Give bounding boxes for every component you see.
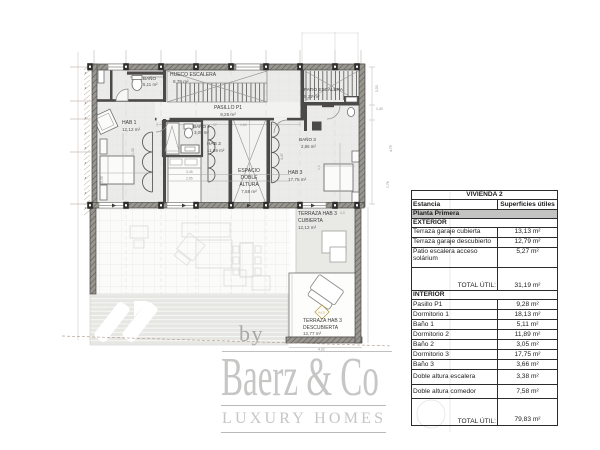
- svg-text:12,77 m²: 12,77 m²: [303, 331, 322, 336]
- svg-text:3,45: 3,45: [186, 170, 193, 174]
- svg-text:12,12 m²: 12,12 m²: [298, 225, 317, 230]
- svg-text:PATIO ESCALERA: PATIO ESCALERA: [304, 87, 344, 92]
- svg-text:8,79 m²: 8,79 m²: [173, 79, 189, 84]
- svg-text:5,27 m²: 5,27 m²: [304, 94, 320, 99]
- svg-text:2,95: 2,95: [186, 177, 193, 181]
- svg-text:17: 17: [213, 123, 217, 127]
- svg-text:ALTURA: ALTURA: [239, 182, 259, 188]
- svg-text:2,53: 2,53: [375, 85, 379, 92]
- svg-text:TERRAZA HAB 3: TERRAZA HAB 3: [298, 211, 337, 217]
- svg-text:DOBLE: DOBLE: [241, 175, 259, 181]
- svg-text:5,11 m²: 5,11 m²: [143, 82, 158, 87]
- svg-text:1,38: 1,38: [131, 148, 135, 155]
- svg-text:7,58 m²: 7,58 m²: [241, 189, 257, 194]
- svg-text:5,39: 5,39: [100, 176, 104, 183]
- svg-text:1,0: 1,0: [317, 165, 321, 170]
- svg-text:%1,5: %1,5: [318, 311, 325, 315]
- svg-text:3,05 m²: 3,05 m²: [194, 130, 209, 135]
- svg-text:2,86 m²: 2,86 m²: [301, 144, 316, 149]
- svg-text:9,28 m²: 9,28 m²: [220, 112, 236, 117]
- svg-text:1,64: 1,64: [240, 123, 247, 127]
- svg-text:0,76: 0,76: [386, 181, 390, 188]
- svg-text:BAÑO: BAÑO: [143, 75, 156, 81]
- svg-text:1,40: 1,40: [376, 107, 383, 111]
- svg-text:BAÑO 3: BAÑO 3: [299, 136, 316, 142]
- svg-text:CUBIERTA: CUBIERTA: [298, 218, 323, 224]
- svg-text:TERRAZA HAB 3: TERRAZA HAB 3: [303, 318, 342, 324]
- svg-text:HUECO ESCALERA: HUECO ESCALERA: [170, 72, 217, 78]
- svg-text:HAB 1: HAB 1: [122, 120, 137, 126]
- svg-text:PASILLO P1: PASILLO P1: [214, 105, 242, 111]
- svg-text:4,0: 4,0: [340, 211, 345, 215]
- svg-text:11,89 m²: 11,89 m²: [207, 148, 225, 153]
- svg-text:17,75 m²: 17,75 m²: [288, 177, 307, 182]
- svg-text:4,75: 4,75: [389, 145, 393, 152]
- svg-text:4,47: 4,47: [280, 153, 284, 160]
- svg-text:ESPACIO: ESPACIO: [238, 168, 260, 174]
- svg-text:12,12 m²: 12,12 m²: [122, 127, 141, 132]
- svg-text:HAB 3: HAB 3: [288, 170, 303, 176]
- svg-text:HAB 2: HAB 2: [207, 141, 221, 147]
